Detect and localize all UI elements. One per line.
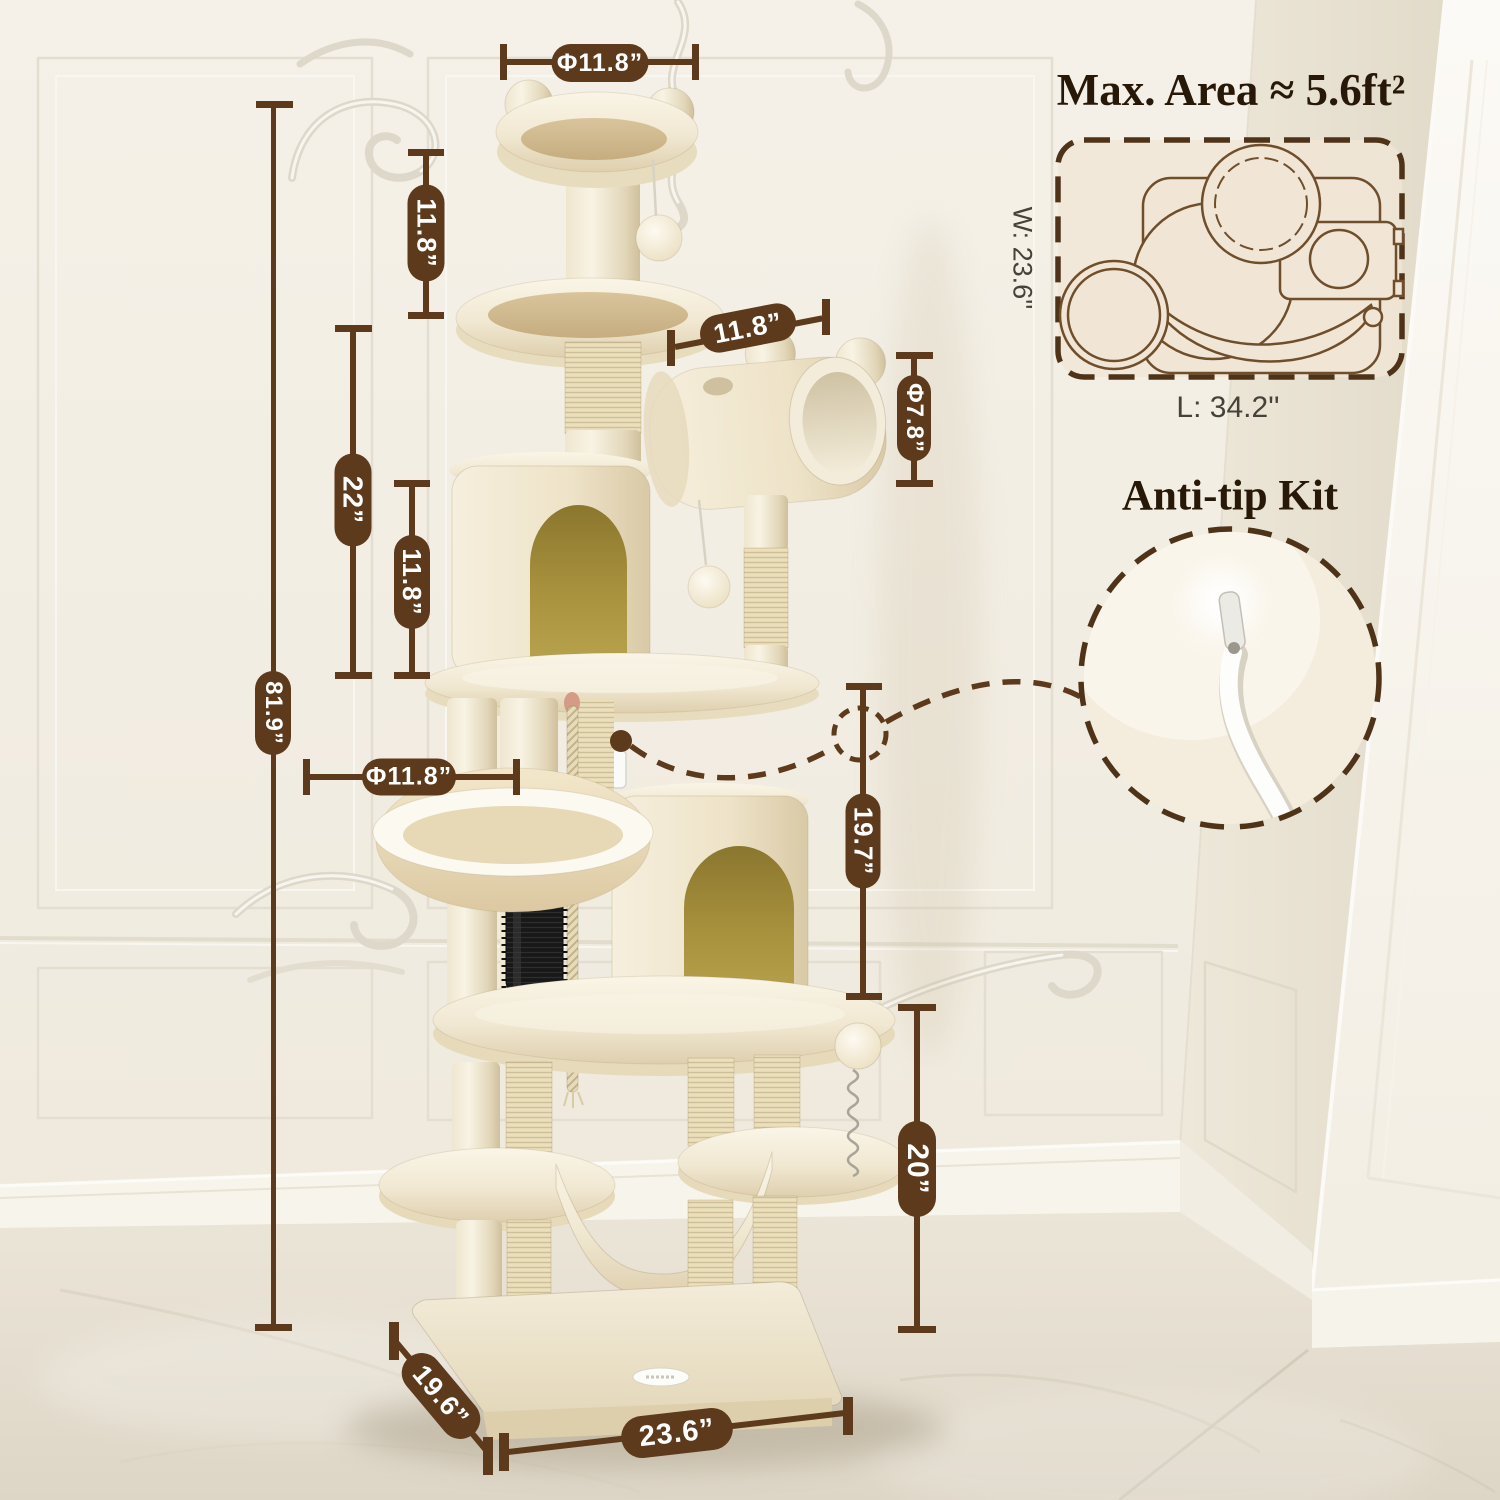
condo-upper: [449, 452, 653, 678]
anti-tip-screw: [1228, 642, 1240, 654]
scene-graphics: [0, 0, 1500, 1500]
max-area-length-label: L: 34.2'': [1176, 391, 1279, 425]
max-area-title: Max. Area ≈ 5.6ft²: [1057, 64, 1406, 116]
dim-label-top-height: 11.8”: [408, 185, 445, 282]
post-base-4: [753, 1196, 797, 1296]
scratching-post-upper: [565, 342, 641, 434]
dim-label-total-height: 81.9”: [255, 671, 291, 755]
max-area-width-label: W: 23.6'': [1007, 207, 1038, 310]
spring-ball: [835, 1023, 881, 1069]
dim-label-upper-height: 22”: [335, 454, 372, 547]
wall-shadow: [878, 220, 982, 1060]
product-dimension-image: Max. Area ≈ 5.6ft² W: 23.6'' L: 34.2'' A…: [0, 0, 1500, 1500]
lower-platform: [433, 976, 895, 1076]
pompom-top: [636, 215, 682, 261]
leader-dot: [610, 730, 632, 752]
dim-label-mid-height: 19.7”: [846, 794, 881, 889]
dim-label-top-diameter: Φ11.8”: [552, 44, 649, 82]
anti-tip-title: Anti-tip Kit: [1122, 472, 1338, 521]
platform-right: [678, 1127, 906, 1205]
max-area-diagram: [1058, 140, 1403, 377]
dim-label-condo-height: 11.8”: [394, 535, 430, 629]
dim-label-tunnel-diameter: Φ7.8”: [897, 375, 931, 461]
post-low-2: [506, 1062, 552, 1152]
condo-upper-entrance: [530, 505, 627, 664]
post-low-1: [452, 1062, 500, 1158]
dim-label-lower-height: 20”: [898, 1121, 936, 1217]
pompom-mid: [688, 566, 730, 608]
dim-label-basket-diameter: Φ11.8”: [362, 759, 456, 796]
top-perch: [496, 80, 698, 188]
